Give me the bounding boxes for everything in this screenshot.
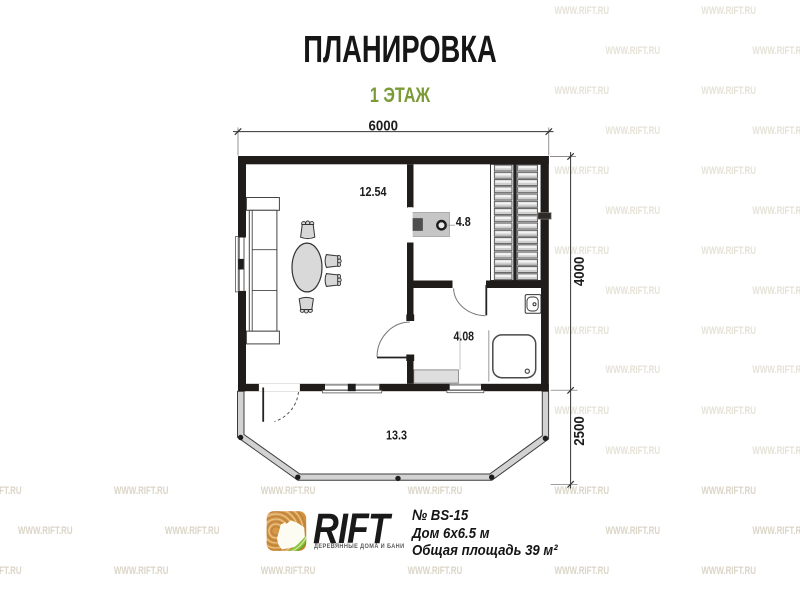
svg-text:2500: 2500: [571, 416, 588, 446]
svg-text:13.3: 13.3: [386, 428, 407, 442]
svg-text:4000: 4000: [571, 257, 588, 287]
svg-text:4.8: 4.8: [456, 215, 471, 229]
svg-text:12.54: 12.54: [360, 185, 387, 199]
svg-text:4.08: 4.08: [454, 330, 475, 344]
svg-text:6000: 6000: [369, 117, 399, 134]
